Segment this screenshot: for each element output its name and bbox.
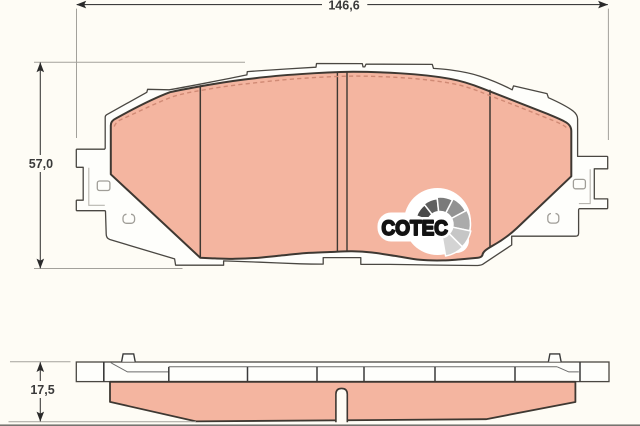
svg-text:57,0: 57,0: [29, 157, 53, 171]
svg-text:COTEC: COTEC: [382, 216, 449, 240]
svg-text:17,5: 17,5: [30, 383, 54, 397]
svg-text:146,6: 146,6: [328, 0, 359, 13]
